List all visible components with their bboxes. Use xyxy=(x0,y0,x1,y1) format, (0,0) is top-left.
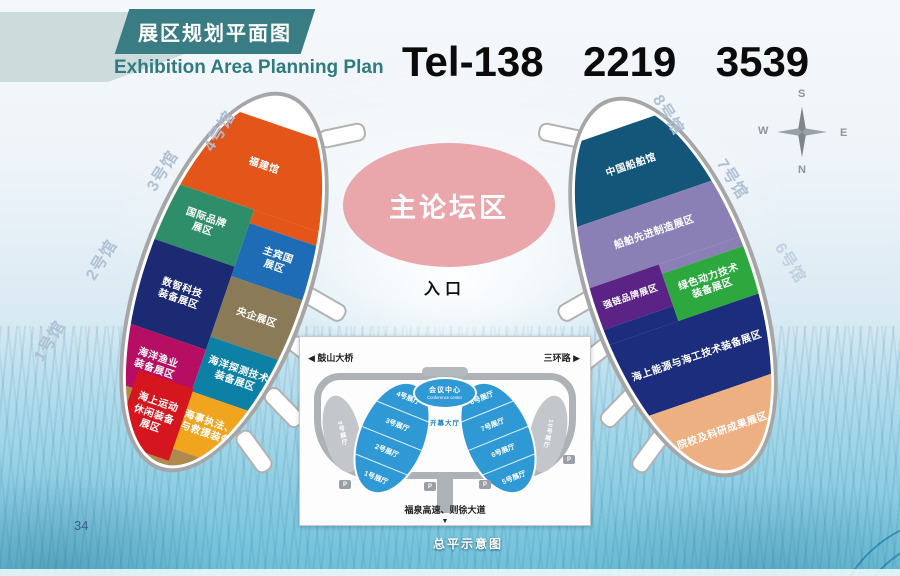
zone-label: 中国船舶馆 xyxy=(604,152,658,181)
zone-label: 强链品牌展区 xyxy=(602,283,660,312)
zone-label: 海上运动休闲装备展区 xyxy=(128,391,180,440)
bottom-strip xyxy=(0,569,900,576)
zone-label: 主宾国展区 xyxy=(257,245,295,279)
parking-icon: P xyxy=(339,480,351,489)
compass-south: S xyxy=(798,88,805,100)
site-hall-9-label: 9号展厅 xyxy=(335,421,349,448)
zone-label: 船舶先进制造展区 xyxy=(613,214,696,253)
conference-center-en: Conference center xyxy=(428,395,463,400)
parking-icon: P xyxy=(424,482,436,491)
down-arrow-icon: ▼ xyxy=(442,518,449,525)
conference-center: 会议中心 Conference center xyxy=(413,377,477,409)
exhibition-plan-page: 展区规划平面图 Exhibition Area Planning Plan Te… xyxy=(0,0,900,576)
compass-east: E xyxy=(840,127,847,139)
page-number: 34 xyxy=(74,518,88,533)
compass-north: N xyxy=(798,164,806,176)
ring-road-label: 三环路 ▶ xyxy=(544,351,580,364)
bottom-road-label: 福泉高速、则徐大道 xyxy=(404,503,485,516)
parking-icon: P xyxy=(479,480,491,489)
page-title-banner: 展区规划平面图 xyxy=(115,9,316,54)
zone-label: 海上能源与海工技术装备展区 xyxy=(631,329,764,385)
conference-center-cn: 会议中心 xyxy=(429,385,461,395)
compass-west: W xyxy=(758,125,768,137)
parking-icon: P xyxy=(563,455,575,464)
zone-label: 央企展区 xyxy=(234,306,278,331)
site-hall-10-label: 10号展厅 xyxy=(541,419,556,450)
zone-label: 福建馆 xyxy=(247,156,281,178)
road-capsule xyxy=(422,367,468,376)
zone-label: 院校及科研成果展区 xyxy=(676,410,769,453)
main-forum-label: 主论坛区 xyxy=(389,186,509,225)
zone-label: 国际品牌展区 xyxy=(180,206,228,243)
compass-icon: S N W E xyxy=(758,90,844,178)
page-subtitle-en: Exhibition Area Planning Plan xyxy=(114,57,384,79)
zone-label: 绿色动力技术装备展区 xyxy=(677,261,745,305)
bridge-label: ◀ 鼓山大桥 xyxy=(308,351,353,364)
zone-label: 数智科技装备展区 xyxy=(156,276,204,313)
entrance-label: 入口 xyxy=(424,275,466,299)
compass-star-icon xyxy=(776,102,828,162)
opening-hall-label: 开幕大厅 xyxy=(430,417,460,427)
plan-caption: 总平示意图 xyxy=(433,535,503,552)
phone-number: Tel-138 2219 3539 xyxy=(402,38,809,86)
main-forum-area: 主论坛区 xyxy=(343,143,555,267)
page-title: 展区规划平面图 xyxy=(138,17,292,46)
zone-label: 海洋探测技术装备展区 xyxy=(203,354,271,398)
site-map-inset: ◀ 鼓山大桥 三环路 ▶ 9号展厅 10号展厅 4号展厅 3号展厅 2号展厅 1… xyxy=(299,336,591,526)
